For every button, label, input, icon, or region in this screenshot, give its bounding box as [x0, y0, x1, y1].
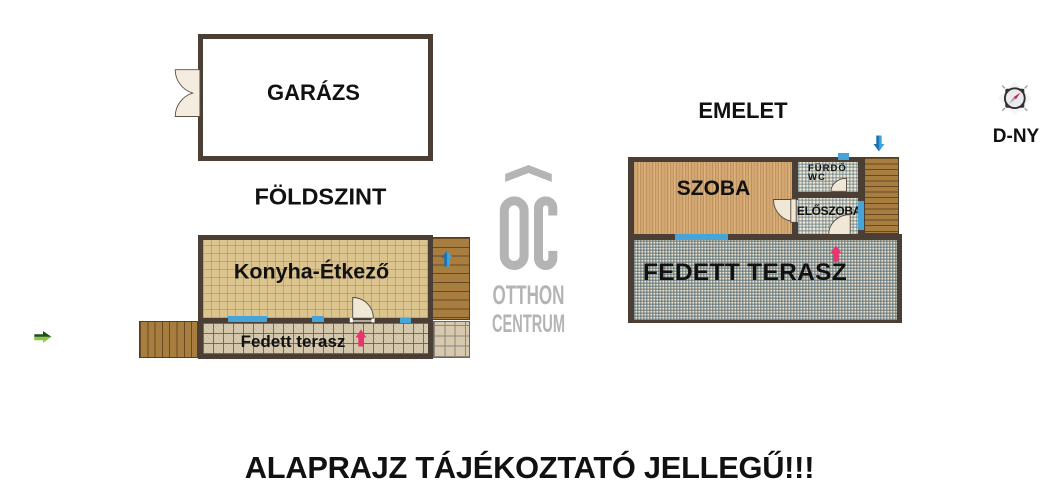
svg-text:CENTRUM: CENTRUM	[492, 310, 565, 338]
svg-text:OTTHON: OTTHON	[493, 280, 565, 310]
